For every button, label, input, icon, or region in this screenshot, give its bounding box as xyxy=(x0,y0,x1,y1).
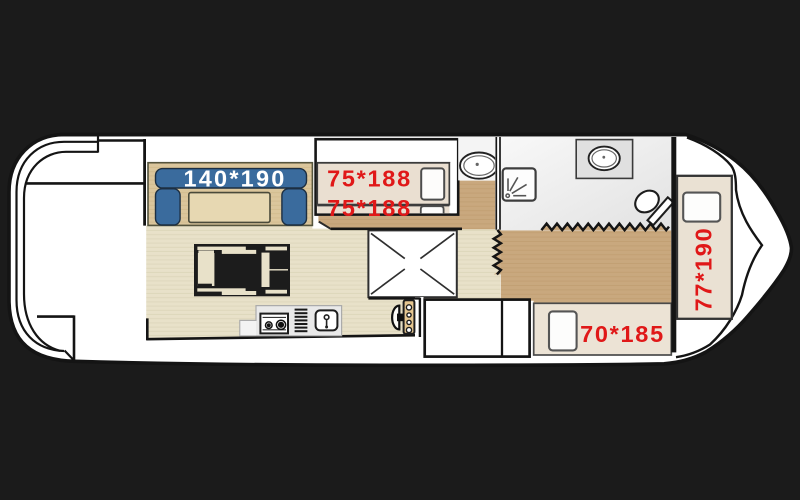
svg-text:75*188: 75*188 xyxy=(327,165,412,191)
svg-text:75*188: 75*188 xyxy=(327,195,412,221)
svg-text:77*190: 77*190 xyxy=(691,227,717,312)
svg-text:70*185: 70*185 xyxy=(580,321,665,347)
svg-text:140*190: 140*190 xyxy=(184,166,287,192)
